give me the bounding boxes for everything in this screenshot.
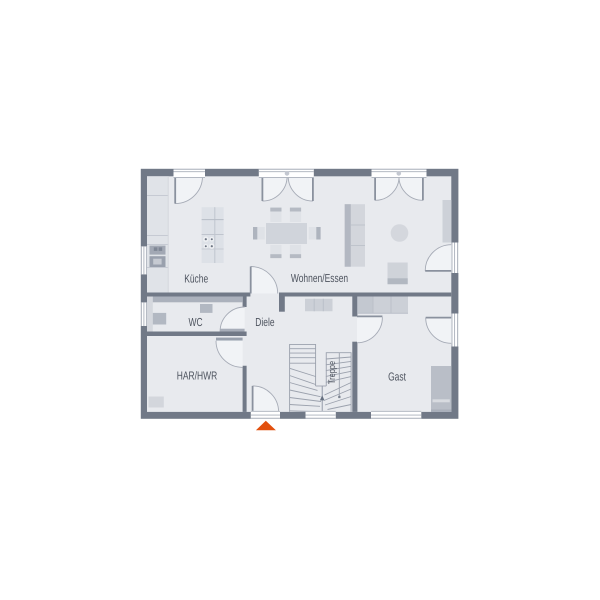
svg-text:Diele: Diele (255, 316, 274, 329)
svg-text:Küche: Küche (184, 272, 208, 285)
svg-text:Wohnen/Essen: Wohnen/Essen (291, 272, 348, 285)
svg-text:Treppe: Treppe (327, 361, 338, 384)
svg-text:Gast: Gast (388, 371, 406, 384)
svg-text:WC: WC (189, 316, 203, 329)
svg-text:HAR/HWR: HAR/HWR (177, 370, 217, 383)
